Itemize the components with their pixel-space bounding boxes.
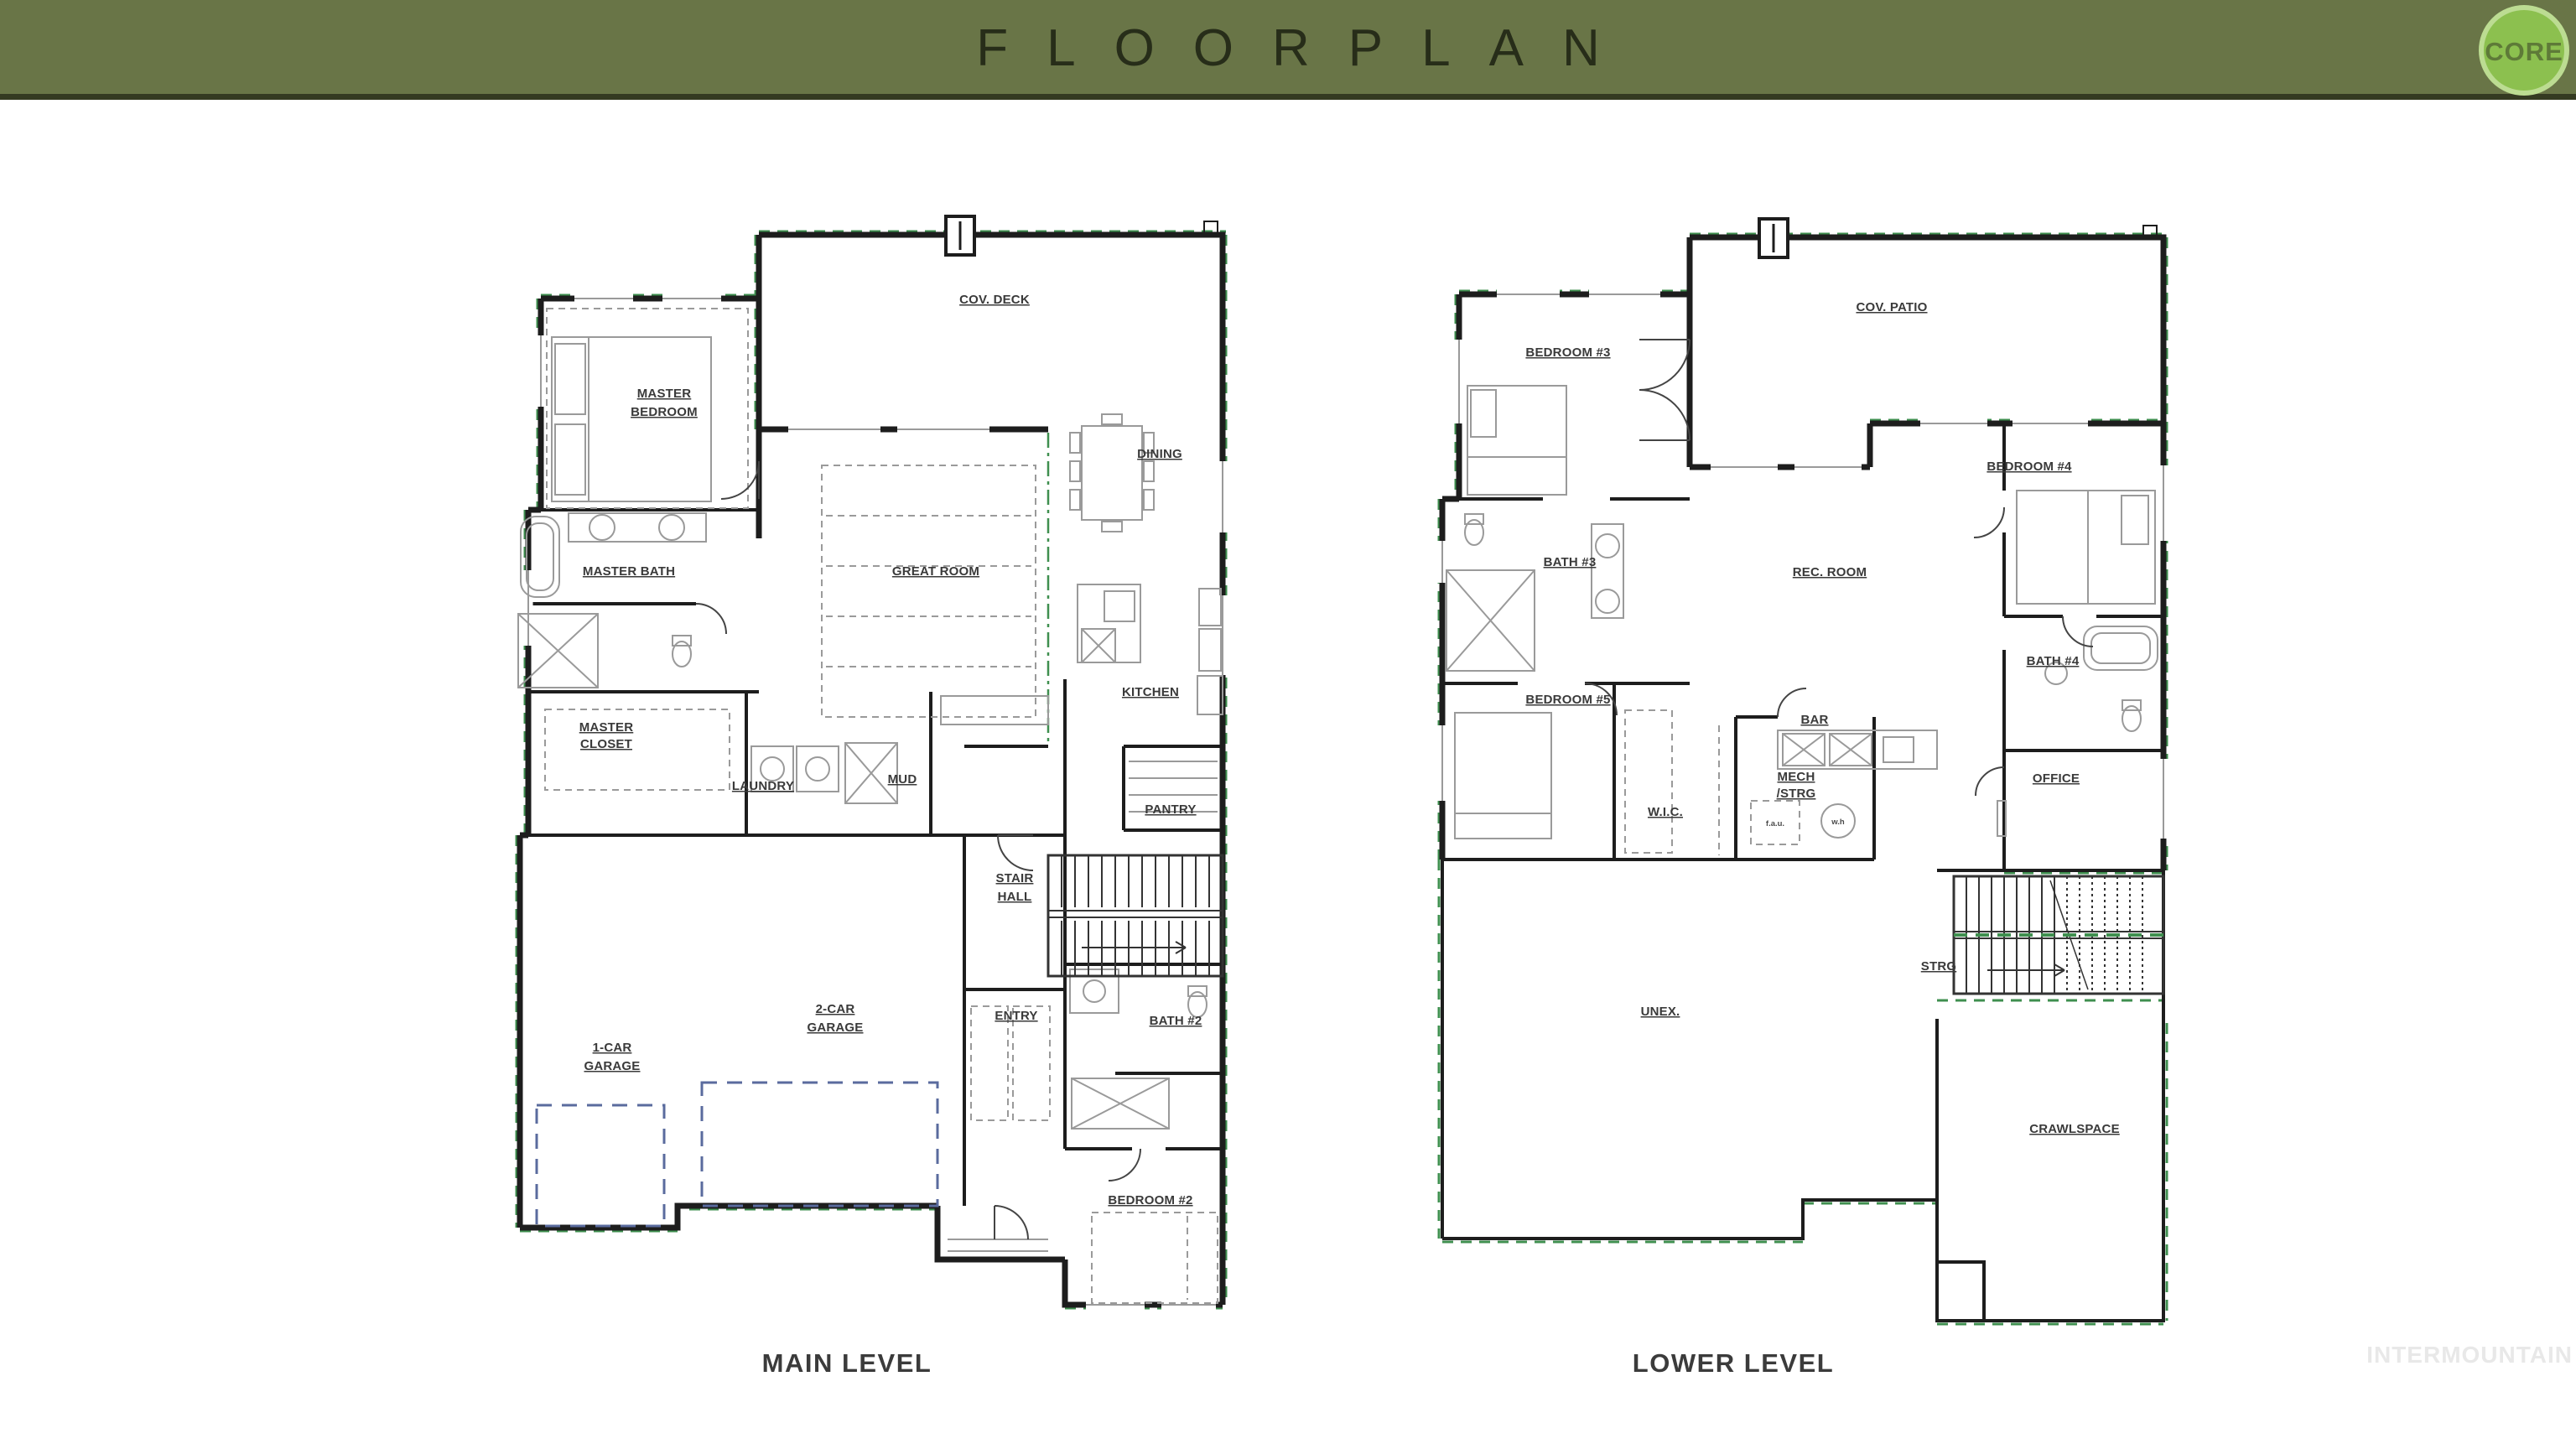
furniture-dashed — [1625, 710, 1800, 855]
room-label-master-closet-2: CLOSET — [580, 737, 632, 751]
furniture-dashed — [545, 309, 1218, 1303]
room-label-laundry: LAUNDRY — [732, 779, 794, 793]
room-label-stair-hall-1: STAIR — [996, 871, 1034, 885]
room-label-entry: ENTRY — [995, 1009, 1037, 1023]
header-banner: FLOORPLAN — [0, 0, 2576, 100]
room-label-unex: UNEX. — [1641, 1005, 1680, 1019]
room-label-wh: w.h — [1831, 818, 1845, 827]
room-label-master-bath: MASTER BATH — [583, 564, 675, 579]
page-title: FLOORPLAN — [0, 0, 2576, 94]
logo-text: CORE — [2485, 37, 2563, 66]
watermark: INTERMOUNTAIN — [2366, 1342, 2573, 1368]
room-label-2-car-garage-2: GARAGE — [807, 1021, 863, 1035]
floorplan-sheet: FLOORPLAN CORE — [0, 0, 2576, 1449]
room-label-bedroom-3: BEDROOM #3 — [1525, 345, 1610, 360]
room-label-bar: BAR — [1800, 713, 1828, 727]
caption-lower-level: LOWER LEVEL — [1549, 1348, 1918, 1379]
caption-main-level: MAIN LEVEL — [662, 1348, 1031, 1379]
room-label-mud: MUD — [888, 772, 917, 787]
room-label-strg: STRG — [1921, 959, 1956, 974]
room-label-master-closet-1: MASTER — [579, 720, 634, 735]
room-label-bath-4: BATH #4 — [2027, 654, 2080, 668]
room-label-cov-patio: COV. PATIO — [1856, 300, 1927, 314]
room-label-stair-hall-2: HALL — [998, 890, 1032, 904]
room-label-bedroom-5: BEDROOM #5 — [1525, 693, 1610, 707]
room-label-fau: f.a.u. — [1766, 819, 1784, 828]
room-label-bedroom-4: BEDROOM #4 — [1987, 460, 2072, 474]
room-label-1-car-garage-1: 1-CAR — [593, 1041, 632, 1055]
room-label-mech-strg-2: /STRG — [1777, 787, 1816, 801]
room-label-master-bedroom-2: BEDROOM — [631, 405, 698, 419]
room-label-bath-3: BATH #3 — [1544, 555, 1597, 569]
room-label-rec-room: REC. ROOM — [1793, 565, 1867, 579]
room-label-great-room: GREAT ROOM — [892, 564, 979, 579]
stairs — [1048, 855, 1223, 976]
room-label-cov-deck: COV. DECK — [959, 293, 1030, 307]
exterior-walls — [520, 235, 1223, 1305]
room-label-bath-2: BATH #2 — [1150, 1014, 1202, 1028]
floorplan-lower-level: BEDROOM #3 COV. PATIO BEDROOM #4 BATH #3… — [1417, 214, 2189, 1337]
room-label-mech-strg-1: MECH — [1778, 770, 1815, 784]
room-label-2-car-garage-1: 2-CAR — [816, 1002, 855, 1016]
room-label-office: OFFICE — [2033, 771, 2080, 786]
room-label-wic: W.I.C. — [1648, 805, 1683, 819]
room-label-bedroom-2: BEDROOM #2 — [1108, 1193, 1192, 1207]
room-label-crawlspace: CRAWLSPACE — [2029, 1122, 2120, 1136]
room-label-kitchen: KITCHEN — [1122, 685, 1179, 699]
room-label-1-car-garage-2: GARAGE — [584, 1059, 640, 1073]
floorplan-main-level: COV. DECK MASTER BEDROOM DINING GREAT RO… — [495, 210, 1266, 1317]
room-label-master-bedroom-1: MASTER — [637, 387, 692, 401]
room-label-dining: DINING — [1137, 447, 1182, 461]
furniture — [518, 337, 1223, 1251]
green-accent-walls — [517, 231, 1226, 1308]
core-logo: CORE — [2477, 3, 2571, 97]
room-label-pantry: PANTRY — [1145, 802, 1196, 817]
windows — [528, 299, 1223, 1305]
